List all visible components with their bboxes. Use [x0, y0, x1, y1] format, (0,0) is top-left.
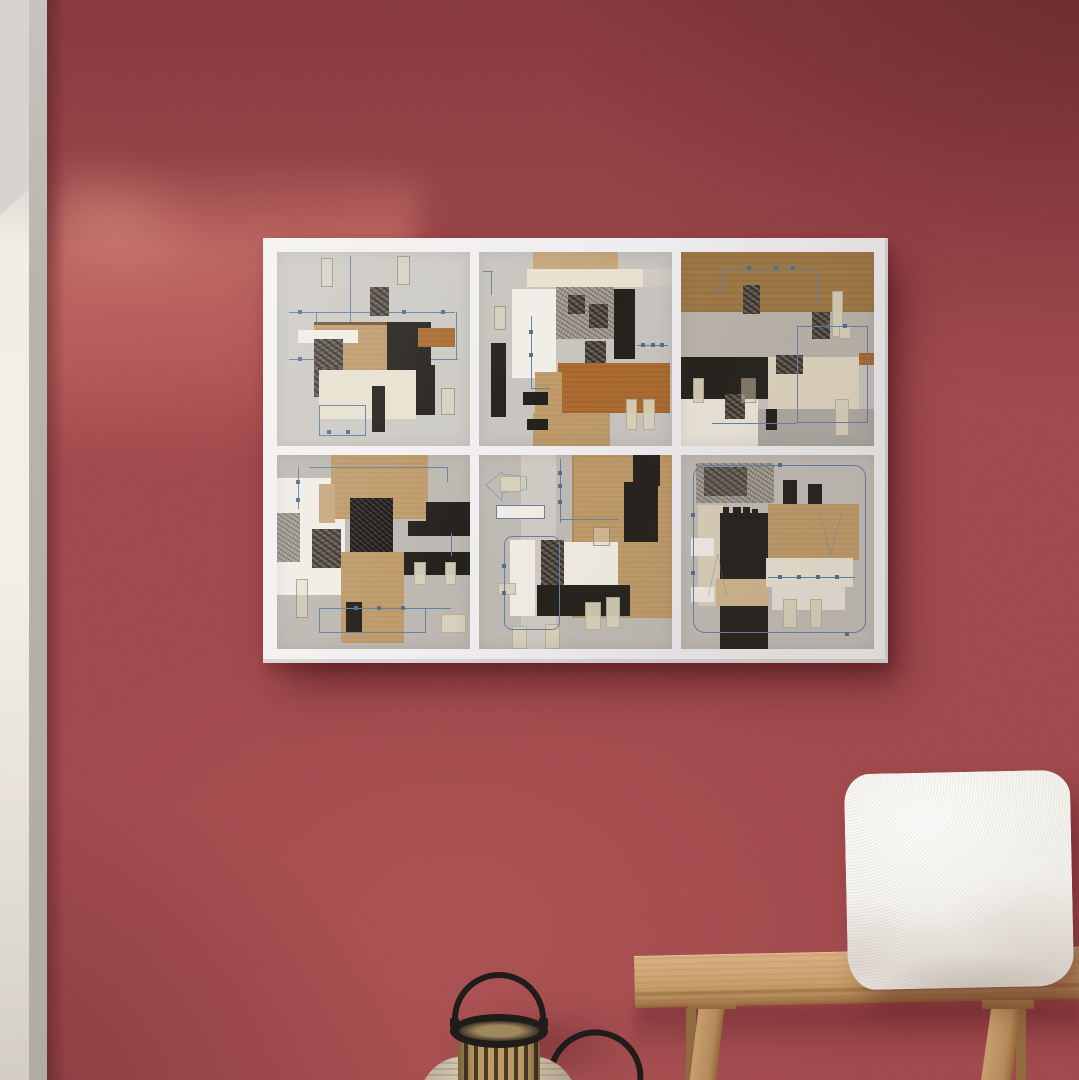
circuit-node [502, 591, 506, 595]
doorway-diagonal-edge [0, 0, 29, 215]
circuit-line [310, 467, 447, 468]
collage-panel-6 [681, 455, 874, 649]
circuit-node [529, 353, 533, 357]
tape-strip [441, 614, 466, 633]
wall-corner-edge [29, 0, 47, 1080]
circuit-rect [504, 536, 560, 629]
circuit-line [723, 268, 816, 269]
black-paper [766, 409, 778, 430]
black-paper [426, 502, 470, 537]
black-paper [523, 392, 548, 406]
black-paper [624, 482, 659, 542]
circuit-node [845, 632, 849, 636]
circuit-node [558, 484, 562, 488]
circuit-node [826, 324, 830, 328]
circuit-node [346, 430, 350, 434]
circuit-line [712, 291, 724, 292]
circuit-node [691, 571, 695, 575]
circuit-line [298, 467, 299, 510]
monoprint [350, 498, 392, 552]
circuit-node [651, 343, 655, 347]
circuit-rect [797, 326, 868, 423]
circuit-node [401, 606, 405, 610]
brown-paper [681, 252, 874, 312]
circuit-node [502, 564, 506, 568]
circuit-node [791, 266, 795, 270]
bench-rail [688, 1000, 736, 1009]
black-paper [491, 343, 506, 417]
tape-strip [296, 579, 308, 618]
circuit-line [816, 268, 817, 305]
artwork-canvas [263, 238, 888, 663]
tape-strip [606, 597, 620, 628]
circuit-node [354, 606, 358, 610]
circuit-line [491, 271, 492, 294]
collage-panel-4 [277, 455, 470, 649]
monoprint [585, 341, 606, 362]
circuit-line [483, 271, 493, 272]
circuit-line [531, 388, 550, 389]
cream-paper [527, 269, 643, 286]
tan-paper [319, 484, 334, 523]
monoprint [312, 529, 341, 568]
collage-panel-2 [479, 252, 672, 446]
tape-strip [593, 527, 610, 546]
tape-strip [445, 562, 457, 585]
circuit-node [816, 575, 820, 579]
circuit-node [691, 513, 695, 517]
circuit-node [296, 498, 300, 502]
tape-strip [441, 388, 455, 415]
circuit-node [377, 606, 381, 610]
circuit-line [560, 459, 561, 523]
tape-strip [693, 378, 705, 403]
circuit-line [456, 312, 457, 359]
monoprint [589, 304, 608, 327]
interior-photo [0, 0, 1079, 1080]
monoprint [277, 513, 300, 562]
bench-rail [982, 1000, 1034, 1009]
circuit-node [797, 575, 801, 579]
circuit-node [747, 266, 751, 270]
circuit-node [778, 575, 782, 579]
circuit-line [451, 533, 452, 556]
tape-strip [643, 399, 655, 430]
circuit-node [774, 266, 778, 270]
monoprint [743, 285, 760, 314]
circuit-node [558, 471, 562, 475]
circuit-line [723, 268, 724, 291]
circuit-node [778, 463, 782, 467]
tape-strip [741, 378, 756, 403]
collage-panel-3 [681, 252, 874, 446]
tan-paper [533, 252, 618, 269]
collage-panel-1 [277, 252, 470, 446]
arrow-down-outline [816, 509, 845, 559]
black-paper [527, 419, 548, 431]
outlined-white-bar [496, 505, 544, 519]
sienna-paper [418, 328, 455, 347]
tape-strip [585, 602, 600, 629]
circuit-node [298, 310, 302, 314]
circuit-line [712, 423, 797, 424]
circuit-node [402, 310, 406, 314]
tape-strip [500, 476, 521, 492]
circuit-node [529, 330, 533, 334]
circuit-node [843, 324, 847, 328]
tape-strip [414, 562, 426, 585]
arrow-outline [706, 552, 729, 599]
tape-strip [626, 399, 638, 430]
monoprint [314, 339, 343, 370]
black-paper [408, 521, 425, 537]
white-pillow [844, 770, 1074, 991]
circuit-node [298, 357, 302, 361]
lantern-rim [450, 1014, 548, 1048]
monoprint [568, 295, 585, 314]
circuit-node [296, 480, 300, 484]
gray-paper [643, 269, 672, 286]
black-paper [372, 386, 386, 433]
circuit-node [660, 343, 664, 347]
circuit-node [441, 310, 445, 314]
tape-strip [397, 256, 411, 285]
circuit-node [558, 500, 562, 504]
black-paper [614, 289, 635, 359]
tape-strip [494, 306, 506, 329]
white-paper [562, 542, 618, 585]
monoprint [370, 287, 389, 316]
white-paper [512, 289, 556, 378]
circuit-node [835, 575, 839, 579]
circuit-line [560, 519, 618, 520]
circuit-line [447, 467, 448, 483]
circuit-rect [319, 608, 425, 633]
wall-corner-shadow [47, 0, 65, 1080]
tape-strip [321, 258, 333, 287]
circuit-line [426, 608, 451, 609]
circuit-node [641, 343, 645, 347]
circuit-node [327, 430, 331, 434]
left-white-wall [0, 0, 29, 1080]
collage-panel-5 [479, 455, 672, 649]
